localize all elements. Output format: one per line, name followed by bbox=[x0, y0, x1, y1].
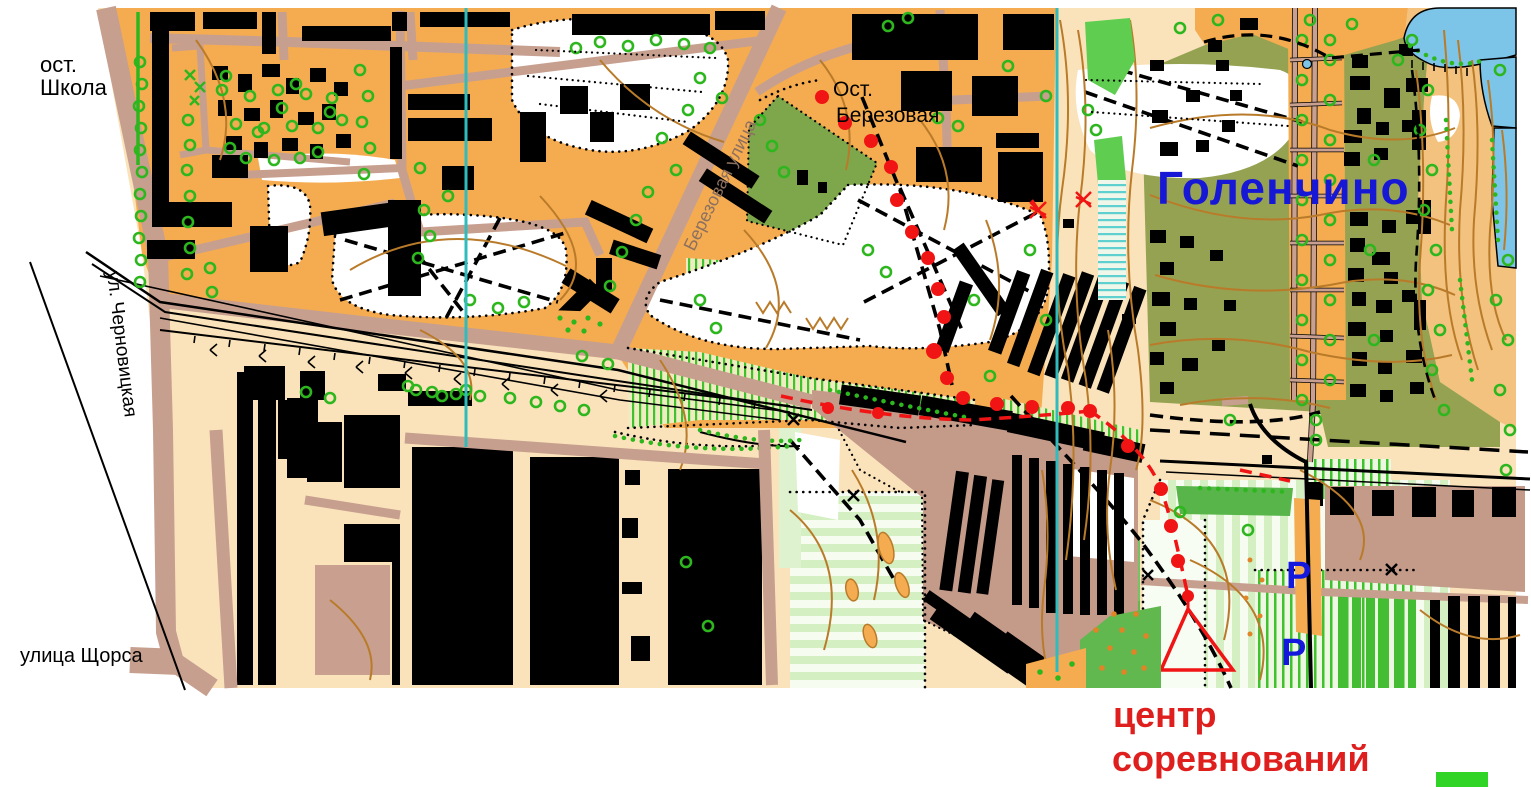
svg-text:соревнований: соревнований bbox=[1112, 738, 1370, 779]
svg-text:Березовая: Березовая bbox=[836, 104, 939, 127]
svg-text:центр: центр bbox=[1113, 694, 1217, 735]
svg-text:Голенчино: Голенчино bbox=[1157, 162, 1410, 214]
svg-text:Р: Р bbox=[1281, 632, 1306, 674]
svg-text:Школа: Школа bbox=[40, 75, 108, 100]
svg-text:Ост.: Ост. bbox=[833, 78, 873, 101]
svg-text:ост.: ост. bbox=[40, 52, 77, 77]
svg-text:Р: Р bbox=[1286, 555, 1311, 597]
svg-text:улица Щорса: улица Щорса bbox=[20, 645, 144, 667]
